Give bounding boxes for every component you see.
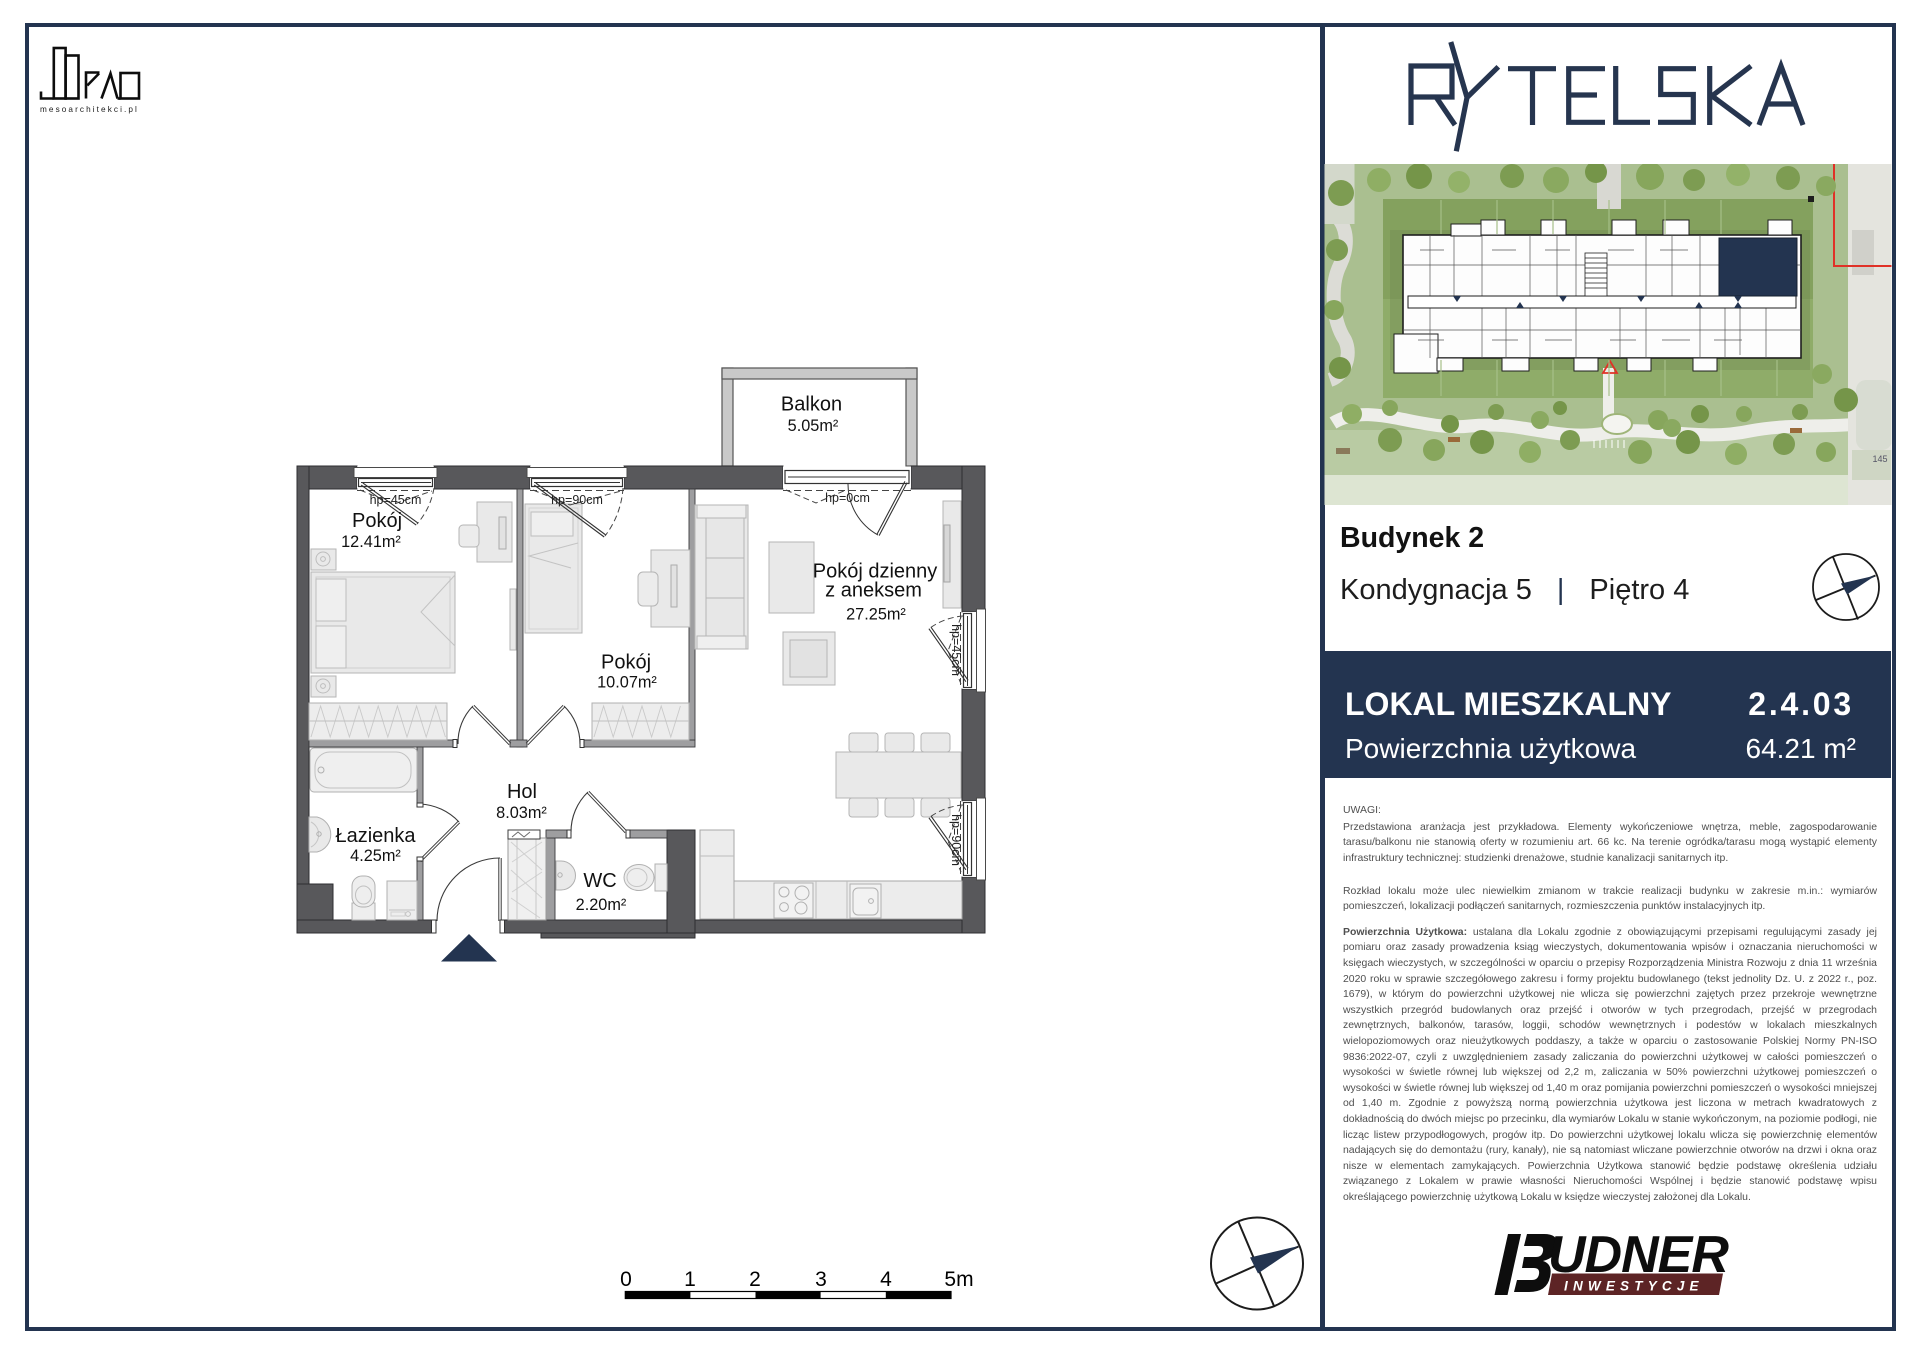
svg-text:8.03m²: 8.03m² — [496, 804, 547, 822]
svg-text:Łazienka: Łazienka — [335, 825, 416, 847]
svg-text:10.07m²: 10.07m² — [597, 674, 657, 692]
svg-text:WC: WC — [583, 870, 616, 892]
svg-text:mesoarchitekci.pl: mesoarchitekci.pl — [40, 105, 139, 114]
svg-text:INWESTYCJE: INWESTYCJE — [1564, 1279, 1704, 1294]
svg-text:5.05m²: 5.05m² — [788, 417, 839, 435]
svg-text:5m: 5m — [944, 1268, 973, 1291]
svg-text:2.20m²: 2.20m² — [576, 896, 627, 914]
svg-text:27.25m²: 27.25m² — [846, 606, 906, 624]
svg-text:0: 0 — [620, 1268, 632, 1291]
svg-text:2: 2 — [749, 1268, 761, 1291]
svg-text:hp=90cm: hp=90cm — [551, 493, 603, 507]
svg-text:Pokój: Pokój — [352, 510, 402, 532]
svg-text:z aneksem: z aneksem — [825, 580, 922, 602]
svg-text:Pokój: Pokój — [601, 652, 651, 674]
svg-text:145: 145 — [1872, 454, 1887, 464]
svg-text:4.25m²: 4.25m² — [350, 847, 401, 865]
svg-text:hp=45cm: hp=45cm — [949, 624, 963, 676]
svg-text:hp=0cm: hp=0cm — [825, 491, 870, 505]
svg-text:Balkon: Balkon — [781, 394, 842, 416]
svg-text:1: 1 — [684, 1268, 696, 1291]
svg-text:3: 3 — [815, 1268, 827, 1291]
svg-text:hp=90cm: hp=90cm — [949, 814, 963, 866]
svg-text:12.41m²: 12.41m² — [341, 533, 401, 551]
svg-text:4: 4 — [880, 1268, 892, 1291]
svg-text:Hol: Hol — [507, 781, 537, 803]
svg-text:hp=45cm: hp=45cm — [370, 493, 422, 507]
